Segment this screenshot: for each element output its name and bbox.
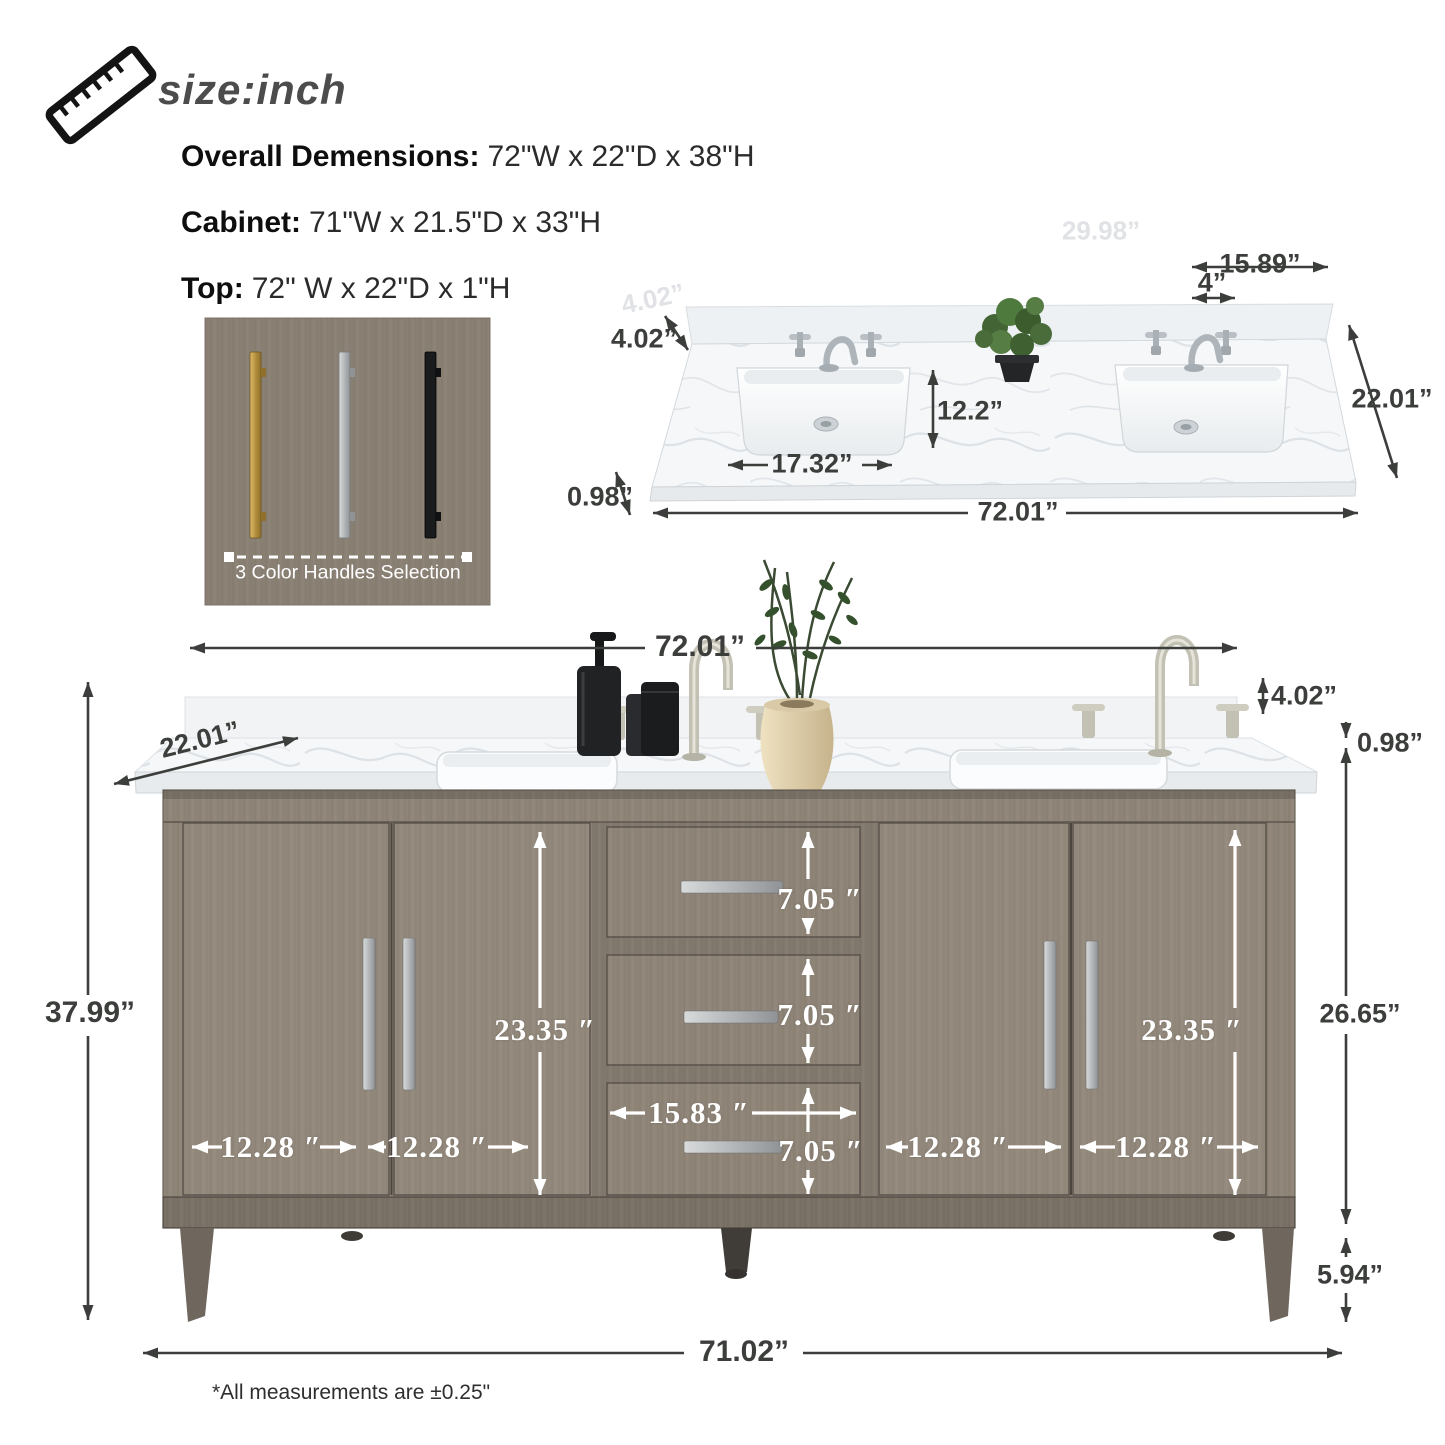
dim-door-height-left: 23.35 ″ xyxy=(494,1012,596,1048)
size-infographic: size:inch Overall Demensions:72"W x 22"D… xyxy=(0,0,1445,1445)
dim-leg-height: 5.94” xyxy=(1317,1260,1383,1291)
dim-drawer-width: 15.83 ″ xyxy=(648,1095,750,1131)
dim-countertop-backsplash-height: 4.02” xyxy=(611,324,677,355)
vanity-illustration xyxy=(88,560,1346,1353)
spec-overall-value: 72"W x 22"D x 38"H xyxy=(487,140,754,173)
dim-countertop-depth: 22.01” xyxy=(1351,384,1432,415)
spec-top-value: 72" W x 22"D x 1"H xyxy=(252,272,511,305)
dim-door-height-right: 23.35 ″ xyxy=(1141,1012,1243,1048)
dim-vanity-width: 72.01” xyxy=(655,630,745,664)
dim-countertop-top-width: 15.89” xyxy=(1219,249,1300,280)
spec-overall-label: Overall Demensions: xyxy=(181,140,479,173)
size-unit-title: size:inch xyxy=(158,66,347,114)
dim-cabinet-side-height: 26.65” xyxy=(1319,999,1400,1030)
cabinet-legs xyxy=(180,1228,1294,1322)
spec-top-label: Top: xyxy=(181,272,244,305)
dim-vanity-top-thickness: 0.98” xyxy=(1357,728,1423,759)
dim-countertop-thickness: 0.98” xyxy=(567,482,633,513)
dim-drawer2-height: 7.05 ″ xyxy=(777,997,862,1033)
dim-countertop-hole-spacing: 4” xyxy=(1198,268,1227,299)
dim-countertop-width: 72.01” xyxy=(977,497,1058,528)
handles-caption: 3 Color Handles Selection xyxy=(235,562,460,585)
dim-door3-width: 12.28 ″ xyxy=(907,1129,1009,1165)
dim-vanity-bottom-width: 71.02” xyxy=(699,1335,789,1369)
dim-drawer1-height: 7.05 ″ xyxy=(777,881,862,917)
dim-door1-width: 12.28 ″ xyxy=(220,1129,322,1165)
dim-countertop-sink-depth: 12.2” xyxy=(937,396,1003,427)
spec-overall: Overall Demensions:72"W x 22"D x 38"H xyxy=(181,140,755,174)
spec-cabinet: Cabinet:71"W x 21.5"D x 33"H xyxy=(181,206,755,240)
dim-door2-width: 12.28 ″ xyxy=(386,1129,488,1165)
dim-drawer3-height: 7.05 ″ xyxy=(778,1133,863,1169)
spec-cabinet-value: 71"W x 21.5"D x 33"H xyxy=(309,206,601,239)
spec-cabinet-label: Cabinet: xyxy=(181,206,301,239)
dim-countertop-sink-width: 17.32” xyxy=(771,449,852,480)
measurement-footnote: *All measurements are ±0.25" xyxy=(212,1381,490,1405)
dim-door4-width: 12.28 ″ xyxy=(1115,1129,1217,1165)
dim-vanity-backsplash-height: 4.02” xyxy=(1271,681,1337,712)
ghost-dim: 29.98” xyxy=(1062,216,1140,247)
ruler-icon xyxy=(47,48,154,143)
dim-vanity-height: 37.99” xyxy=(45,996,135,1030)
